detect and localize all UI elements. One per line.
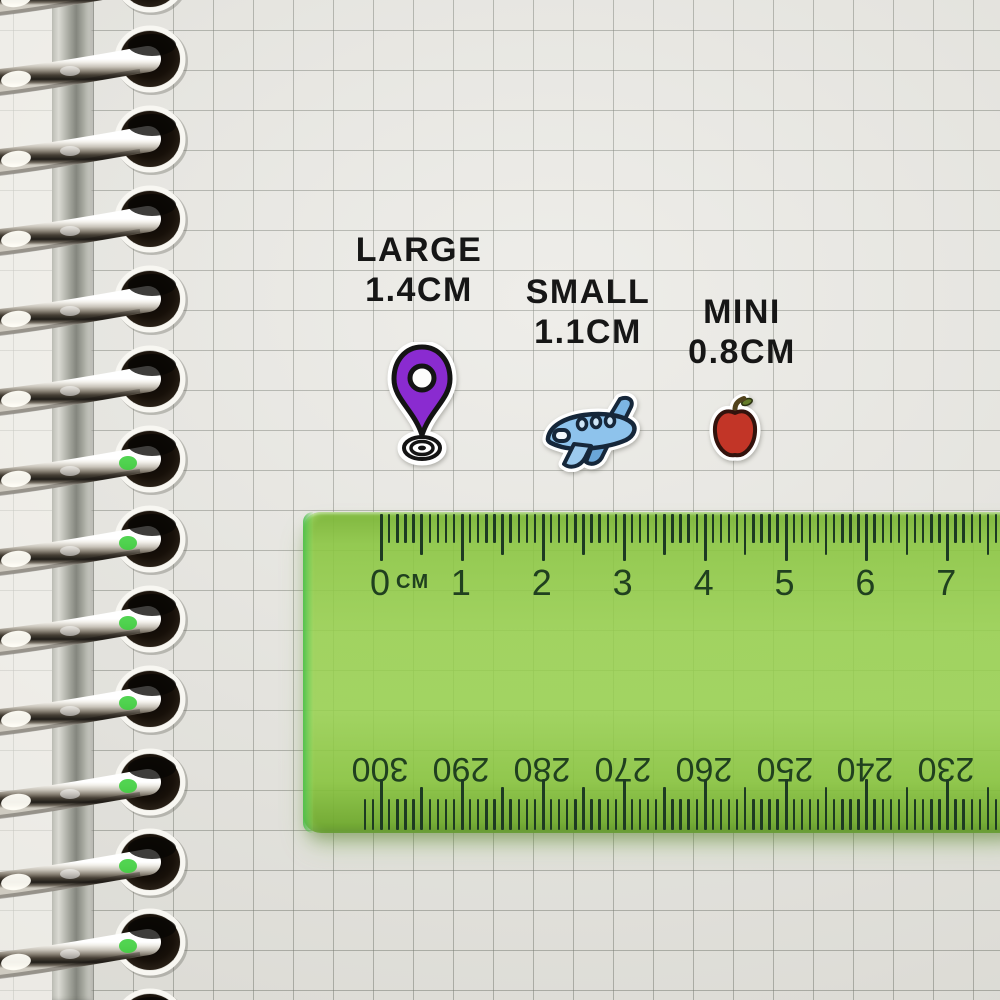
mm-scale-tick [566,799,568,830]
cm-scale-tick [971,514,973,543]
cm-scale-tick [946,514,949,561]
location-pin-sticker [386,342,458,470]
mm-scale-tick [542,779,545,830]
mm-scale-tick [550,799,552,830]
cm-number: 1 [451,562,471,604]
mm-scale-tick [623,779,626,830]
mm-scale-tick [509,799,511,830]
cm-scale-tick [526,514,528,543]
label-large-size: 1.4CM [356,270,483,310]
mm-scale-tick [841,799,843,830]
cm-scale-tick [938,514,940,543]
mm-scale-tick [801,799,803,830]
cm-scale-tick [752,514,754,543]
label-small: SMALL 1.1CM [526,272,651,352]
cm-scale-tick [962,514,964,543]
mm-scale-tick [987,787,989,830]
mm-scale-tick [493,799,495,830]
cm-scale-tick [631,514,633,543]
cm-scale-tick [647,514,649,543]
mm-scale-tick [785,779,788,830]
mm-scale-tick [534,799,536,830]
mm-scale-tick [388,799,390,830]
cm-scale-tick [914,514,916,543]
cm-scale-tick [987,514,989,555]
cm-scale-tick [445,514,447,543]
cm-scale-tick [801,514,803,543]
mm-scale-tick [420,787,422,830]
cm-scale-tick [720,514,722,543]
mm-scale-tick [793,799,795,830]
cm-scale-tick [420,514,422,555]
cm-scale-tick [857,514,859,543]
cm-scale-tick [979,514,981,543]
cm-scale-tick [615,514,617,543]
mm-scale-tick [712,799,714,830]
cm-scale-tick [849,514,851,543]
cm-scale-tick [550,514,552,543]
binding-ring [0,911,186,980]
mm-scale-tick [995,799,997,830]
cm-scale-tick [493,514,495,543]
mm-scale-tick [412,799,414,830]
mm-scale-tick [890,799,892,830]
binding-ring [0,751,186,820]
label-large-name: LARGE [356,230,483,270]
cm-scale-tick [509,514,511,543]
cm-scale-tick [477,514,479,543]
mm-scale-tick [364,799,366,830]
apple-sticker [707,394,763,464]
label-mini-name: MINI [688,292,796,332]
ruler: CM 01234567 300290280270260250240230 [303,512,1000,833]
mm-scale-tick [906,787,908,830]
mm-scale-tick [922,799,924,830]
binding-ring [0,28,186,97]
mm-scale-tick [768,799,770,830]
cm-scale-tick [922,514,924,543]
mm-scale-tick [857,799,859,830]
cm-scale-tick [898,514,900,543]
ruler-cm-numbers: 01234567 [303,512,1000,833]
mm-scale-tick [590,799,592,830]
mm-scale-tick [445,799,447,830]
cm-scale-tick [817,514,819,543]
mm-number-inverted: 250 [756,749,813,788]
cm-scale-tick [396,514,398,543]
mm-number-inverted: 230 [918,749,975,788]
mm-scale-tick [704,779,707,830]
cm-scale-tick [437,514,439,543]
cm-scale-tick [930,514,932,543]
mm-scale-tick [809,799,811,830]
mm-scale-tick [946,779,949,830]
cm-scale-tick [558,514,560,543]
mm-scale-tick [720,799,722,830]
notebook-photo: LARGE 1.4CM SMALL 1.1CM MINI 0.8CM [0,0,1000,1000]
cm-scale-tick [534,514,536,543]
mm-scale-tick [736,799,738,830]
spiral-binding [0,0,230,1000]
cm-scale-tick [954,514,956,543]
cm-number: 2 [532,562,552,604]
cm-scale-tick [679,514,681,543]
cm-scale-tick [809,514,811,543]
cm-scale-tick [760,514,762,543]
mm-scale-tick [849,799,851,830]
mm-scale-tick [744,787,746,830]
ruler-mm-numbers: 300290280270260250240230 [303,512,1000,833]
ruler-unit-label: CM [396,571,429,594]
cm-scale-tick [882,514,884,543]
cm-number: 6 [855,562,875,604]
cm-number: 3 [613,562,633,604]
mm-scale-tick [979,799,981,830]
mm-number-inverted: 280 [513,749,570,788]
binding-ring [0,268,186,337]
cm-scale-tick [655,514,657,543]
mm-scale-tick [639,799,641,830]
mm-scale-tick [461,779,464,830]
binding-ring [0,508,186,577]
mm-scale-tick [404,799,406,830]
cm-scale-tick [518,514,520,543]
mm-scale-tick [873,799,875,830]
mm-scale-tick [882,799,884,830]
cm-scale-tick [412,514,414,543]
ruler-left-edge [303,512,313,833]
cm-scale-tick [582,514,584,555]
binding-ring [0,588,186,657]
mm-scale-tick [437,799,439,830]
cm-scale-tick [696,514,698,543]
binding-ring [0,428,186,497]
mm-scale-tick [453,799,455,830]
cm-scale-tick [485,514,487,543]
cm-scale-tick [873,514,875,543]
mm-scale-tick [477,799,479,830]
mm-scale-tick [962,799,964,830]
cm-scale-tick [768,514,770,543]
ruler-mm-ticks [303,512,1000,833]
cm-number: 5 [774,562,794,604]
label-large: LARGE 1.4CM [356,230,483,310]
cm-scale-tick [704,514,707,561]
cm-scale-tick [736,514,738,543]
mm-scale-tick [647,799,649,830]
cm-scale-tick [404,514,406,543]
cm-scale-tick [744,514,746,555]
cm-scale-tick [687,514,689,543]
binding-ring [0,108,186,177]
mm-scale-tick [582,787,584,830]
mm-scale-tick [671,799,673,830]
mm-scale-tick [825,787,827,830]
cm-scale-tick [671,514,673,543]
cm-scale-tick [833,514,835,543]
mm-scale-tick [518,799,520,830]
binding-ring [0,0,186,17]
binding-ring [0,668,186,737]
mm-scale-tick [898,799,900,830]
mm-scale-tick [865,779,868,830]
cm-number: 0 [370,562,390,604]
mm-scale-tick [372,799,374,830]
cm-scale-tick [469,514,471,543]
mm-scale-tick [396,799,398,830]
cm-scale-tick [429,514,431,543]
cm-scale-tick [501,514,503,555]
label-mini-size: 0.8CM [688,332,796,372]
mm-scale-tick [380,779,383,830]
mm-scale-tick [663,787,665,830]
binding-ring [0,831,186,900]
mm-number-inverted: 300 [352,749,409,788]
mm-scale-tick [833,799,835,830]
mm-number-inverted: 270 [594,749,651,788]
mm-scale-tick [938,799,940,830]
cm-scale-tick [663,514,665,555]
mm-scale-tick [469,799,471,830]
cm-scale-tick [841,514,843,543]
label-small-size: 1.1CM [526,312,651,352]
mm-number-inverted: 290 [433,749,490,788]
mm-number-inverted: 260 [675,749,732,788]
cm-scale-tick [865,514,868,561]
mm-scale-tick [631,799,633,830]
mm-scale-tick [501,787,503,830]
cm-scale-tick [542,514,545,561]
cm-scale-tick [623,514,626,561]
mm-scale-tick [429,799,431,830]
cm-scale-tick [995,514,997,543]
mm-scale-tick [752,799,754,830]
cm-scale-tick [639,514,641,543]
mm-scale-tick [485,799,487,830]
mm-scale-tick [615,799,617,830]
cm-scale-tick [461,514,464,561]
cm-scale-tick [906,514,908,555]
cm-scale-tick [598,514,600,543]
cm-scale-tick [728,514,730,543]
cm-scale-tick [590,514,592,543]
mm-scale-tick [971,799,973,830]
mm-scale-tick [930,799,932,830]
mm-scale-tick [914,799,916,830]
cm-scale-tick [785,514,788,561]
mm-scale-tick [607,799,609,830]
ruler-cm-ticks [303,512,1000,833]
mm-scale-tick [954,799,956,830]
mm-scale-tick [728,799,730,830]
label-mini: MINI 0.8CM [688,292,796,372]
cm-scale-tick [388,514,390,543]
cm-scale-tick [712,514,714,543]
mm-scale-tick [776,799,778,830]
cm-scale-tick [776,514,778,543]
airplane-sticker [540,392,642,472]
cm-scale-tick [825,514,827,555]
cm-scale-tick [453,514,455,543]
cm-scale-tick [607,514,609,543]
cm-number: 4 [694,562,714,604]
mm-scale-tick [574,799,576,830]
mm-scale-tick [655,799,657,830]
mm-scale-tick [696,799,698,830]
mm-scale-tick [598,799,600,830]
cm-number: 7 [936,562,956,604]
mm-scale-tick [760,799,762,830]
cm-scale-tick [566,514,568,543]
mm-scale-tick [687,799,689,830]
label-small-name: SMALL [526,272,651,312]
binding-ring [0,188,186,257]
mm-scale-tick [558,799,560,830]
mm-scale-tick [817,799,819,830]
cm-scale-tick [793,514,795,543]
binding-ring [0,991,186,1000]
cm-scale-tick [890,514,892,543]
mm-number-inverted: 240 [837,749,894,788]
cm-scale-tick [380,514,383,561]
mm-scale-tick [679,799,681,830]
binding-ring [0,348,186,417]
cm-scale-tick [574,514,576,543]
mm-scale-tick [526,799,528,830]
